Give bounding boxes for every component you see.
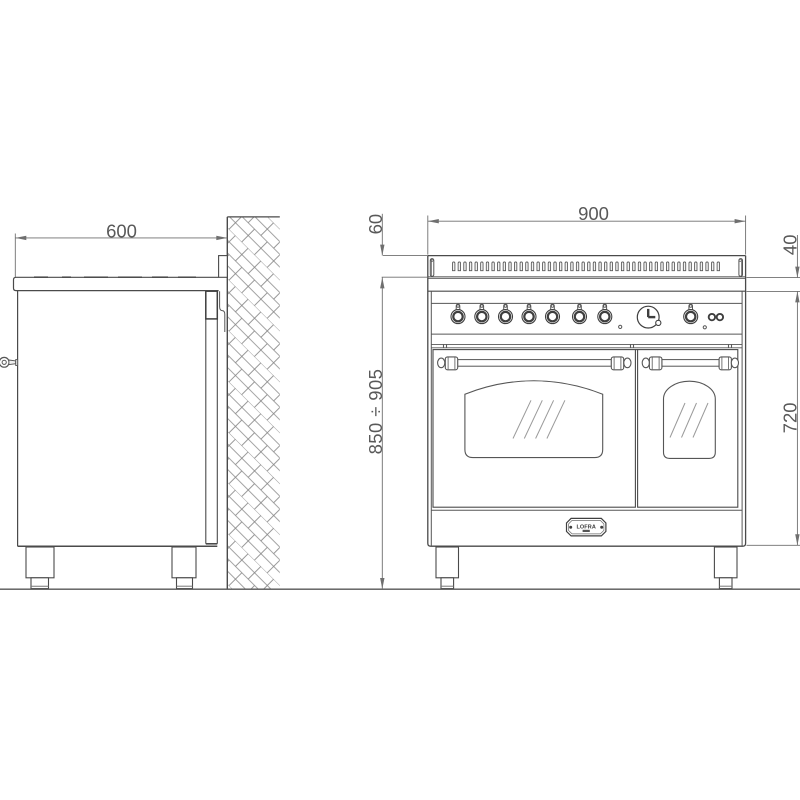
svg-text:850 ÷ 905: 850 ÷ 905 xyxy=(365,369,386,455)
svg-text:LOFRA: LOFRA xyxy=(576,525,595,531)
svg-text:600: 600 xyxy=(106,221,137,242)
svg-text:60: 60 xyxy=(365,214,386,235)
svg-text:720: 720 xyxy=(779,402,800,433)
svg-text:40: 40 xyxy=(779,235,800,256)
svg-text:900: 900 xyxy=(578,203,609,224)
